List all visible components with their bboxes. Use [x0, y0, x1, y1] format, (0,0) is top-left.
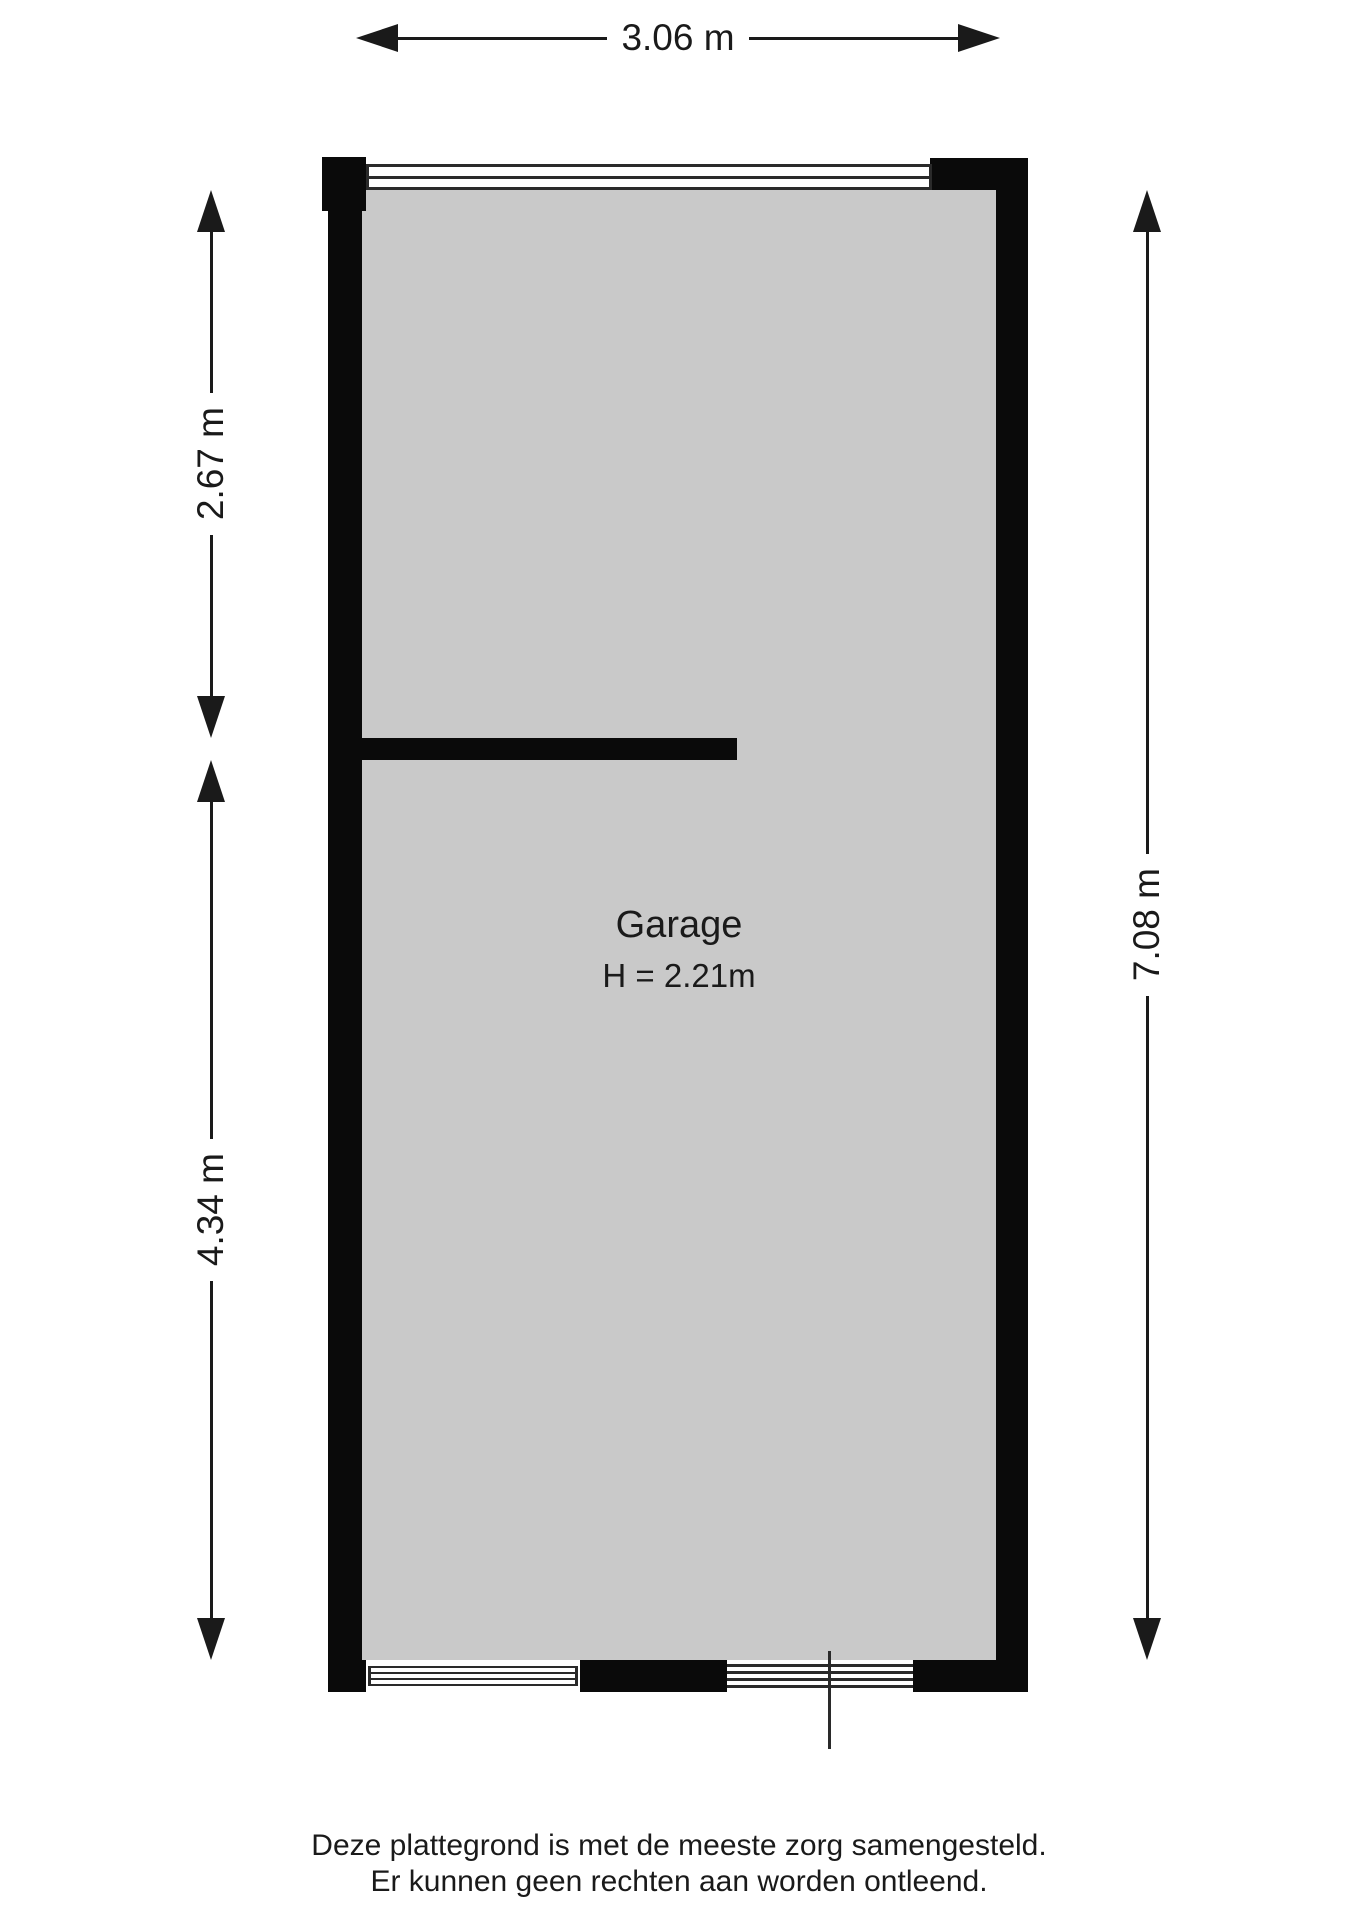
window-bottom-left	[366, 1660, 580, 1692]
dimension-width-top: 3.06 m	[356, 16, 1000, 60]
dimension-right-label: 7.08 m	[1126, 868, 1168, 981]
window-top	[366, 164, 932, 190]
garage-door-line	[727, 1664, 913, 1667]
garage-door-line	[727, 1671, 913, 1674]
wall-right	[996, 158, 1028, 1692]
dimension-total-height: 7.08 m	[1126, 190, 1168, 1660]
garage-door-line	[727, 1685, 913, 1688]
dimension-lower-label: 4.34 m	[190, 1153, 232, 1266]
window-glass-line	[371, 1678, 575, 1680]
dimension-line	[210, 535, 213, 696]
arrow-up-icon	[1133, 190, 1161, 232]
arrow-right-icon	[958, 24, 1000, 52]
dimension-upper-room-height: 2.67 m	[190, 190, 232, 738]
dimension-line	[1146, 996, 1149, 1618]
dimension-lower-room-height: 4.34 m	[190, 760, 232, 1660]
dimension-line	[210, 232, 213, 393]
door-marker-line	[828, 1651, 831, 1749]
disclaimer-text: Deze plattegrond is met de meeste zorg s…	[0, 1828, 1358, 1900]
arrow-left-icon	[356, 24, 398, 52]
arrow-down-icon	[197, 696, 225, 738]
wall-interior-partition	[362, 738, 737, 760]
dimension-line	[210, 1281, 213, 1618]
room-name-label: Garage	[479, 904, 879, 947]
wall-top-right-segment	[930, 158, 998, 190]
dimension-line	[210, 802, 213, 1139]
disclaimer-line-1: Deze plattegrond is met de meeste zorg s…	[0, 1828, 1358, 1864]
dimension-upper-label: 2.67 m	[190, 407, 232, 520]
window-glass-line	[371, 1672, 575, 1674]
arrow-down-icon	[1133, 1618, 1161, 1660]
room-ceiling-height-label: H = 2.21m	[479, 957, 879, 995]
garage-door-line	[727, 1678, 913, 1681]
dimension-width-label: 3.06 m	[621, 17, 734, 59]
arrow-up-icon	[197, 190, 225, 232]
window-glass-line	[369, 176, 929, 179]
dimension-line	[1146, 232, 1149, 854]
wall-corner-top-left	[322, 157, 366, 211]
disclaimer-line-2: Er kunnen geen rechten aan worden ontlee…	[0, 1864, 1358, 1900]
garage-door	[727, 1660, 913, 1692]
arrow-up-icon	[197, 760, 225, 802]
dimension-line	[749, 37, 958, 40]
dimension-line	[398, 37, 607, 40]
wall-left	[328, 158, 362, 1692]
window-frame	[368, 1666, 578, 1686]
arrow-down-icon	[197, 1618, 225, 1660]
